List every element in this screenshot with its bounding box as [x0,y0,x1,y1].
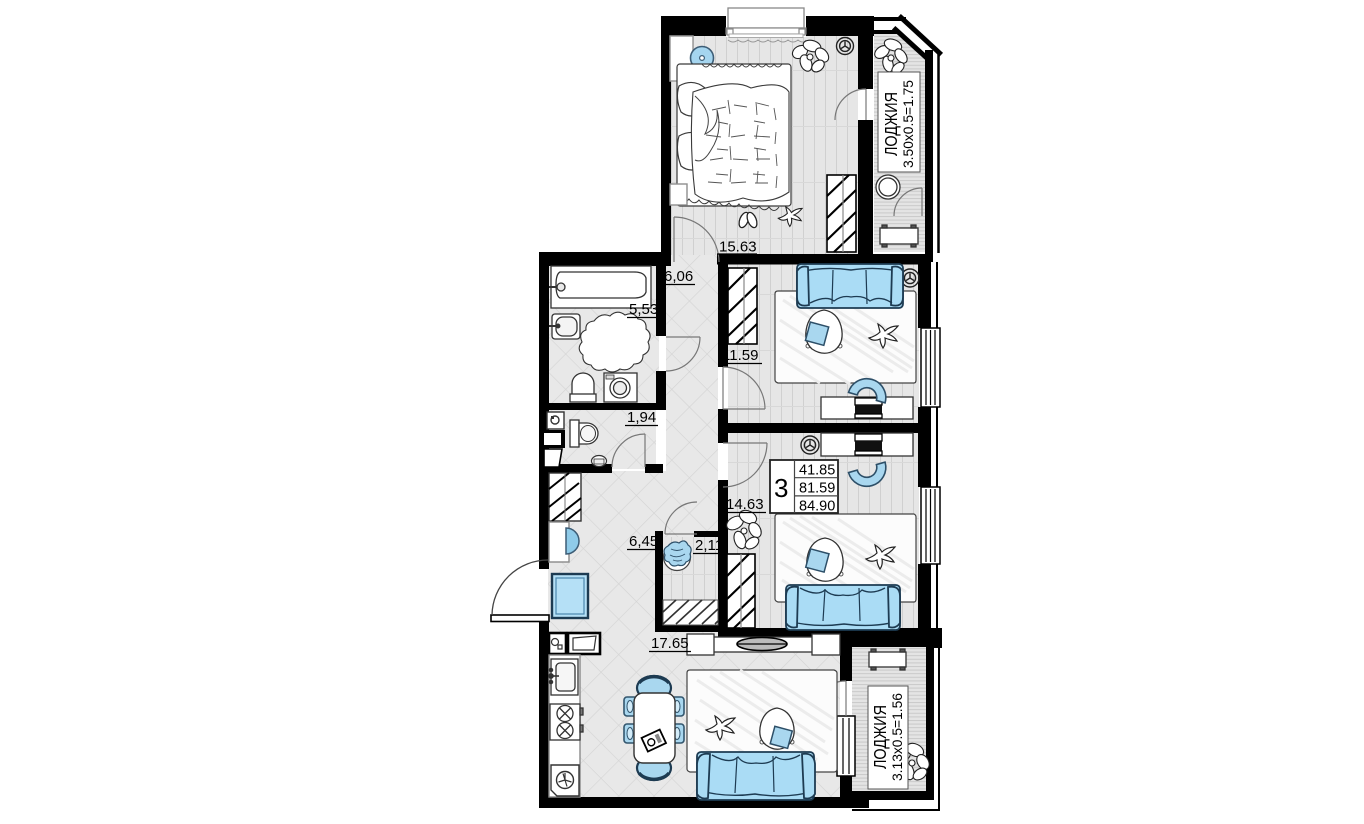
svg-text:5,53: 5,53 [629,301,658,318]
svg-text:3.13х0.5=1.56: 3.13х0.5=1.56 [890,693,905,781]
svg-text:81.59: 81.59 [799,481,835,497]
svg-text:3: 3 [774,473,788,503]
svg-text:6,06: 6,06 [664,268,693,285]
svg-text:ЛОДЖИЯ: ЛОДЖИЯ [870,705,890,769]
svg-text:1,94: 1,94 [627,409,656,426]
svg-text:3.50х0.5=1.75: 3.50х0.5=1.75 [901,80,916,168]
svg-text:14.63: 14.63 [726,496,764,513]
svg-text:84.90: 84.90 [799,499,835,515]
svg-text:17.65: 17.65 [651,635,689,652]
svg-text:15.63: 15.63 [719,239,757,256]
svg-text:6,45: 6,45 [629,533,658,550]
svg-text:41.85: 41.85 [799,463,835,479]
svg-text:ЛОДЖИЯ: ЛОДЖИЯ [881,92,901,156]
svg-text:11.59: 11.59 [722,347,758,364]
svg-text:2,11: 2,11 [695,537,723,554]
